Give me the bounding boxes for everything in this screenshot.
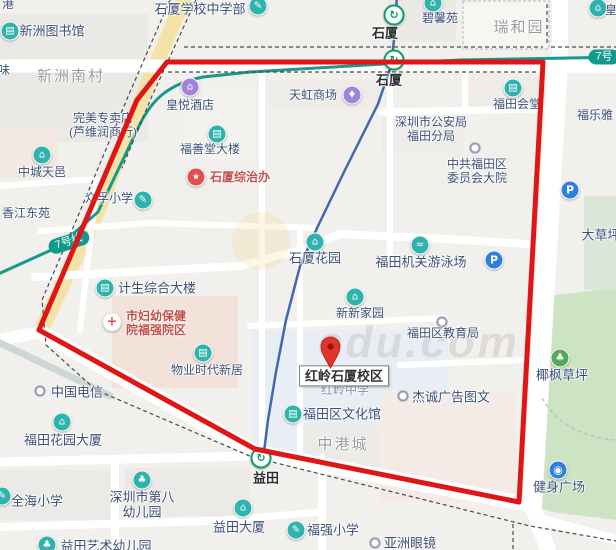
poi-shixia-huayuan[interactable]: 石厦花园 [289,250,341,265]
kindergarten-icon[interactable]: ♣ [38,536,57,550]
gym-icon[interactable]: ◉ [549,461,568,480]
poi-jisheng-building[interactable]: 计生综合大楼 [118,280,196,295]
kindergarten-icon[interactable]: ♣ [133,471,152,490]
poi-china-telecom[interactable]: 中国电信 [51,384,103,399]
school-icon[interactable]: ✎ [0,487,12,506]
parking-icon[interactable]: P [485,251,504,270]
school-icon[interactable]: ✎ [134,191,153,210]
poi-no8-kindergarten[interactable]: 深圳市第八幼儿园 [109,490,174,521]
poi-fuqiang-primary[interactable]: 福强小学 [307,522,359,537]
poi-futian-committee[interactable]: 中共福田区委员会大院 [447,157,507,185]
office-icon[interactable]: ▤ [96,279,115,298]
residence-icon[interactable]: ⌂ [234,499,253,518]
metro-icon[interactable]: ↻ [384,5,405,26]
poi-xinxin-jiayuan[interactable]: 新新家园 [336,306,384,320]
metro-line-badge: 7号 [588,50,616,65]
poi-jianshen-square[interactable]: 健身广场 [533,479,585,494]
poi-bixinyuan[interactable]: 碧馨苑 [422,11,458,25]
poi-futian-garden-tower[interactable]: 福田花园大厦 [24,432,102,447]
poi-wuye-shidai[interactable]: 物业时代新居 [171,363,243,377]
dot-icon[interactable] [470,143,481,154]
poi-shixia-school-middle[interactable]: 石厦学校中学部 [154,1,245,16]
poi-wanmei-store[interactable]: 完美专卖店(芦维润商行) [69,111,137,139]
metro-line-badge: 7号线 [47,228,92,255]
school-icon[interactable]: ✎ [287,521,306,540]
government-icon[interactable]: ★ [187,168,206,187]
dot-icon[interactable] [370,538,381,549]
residence-icon[interactable]: ⌂ [306,233,325,252]
metro-icon[interactable]: ↻ [384,50,405,71]
hotel-icon[interactable]: ⌂ [181,78,200,97]
poi-zhonggangcheng[interactable]: 中港城 [317,436,368,454]
poi-xinzhou-library[interactable]: 新洲图书馆 [19,23,84,38]
dot-icon[interactable] [398,391,409,402]
park-icon[interactable]: ♣ [551,349,570,368]
poi-fuyou-hospital[interactable]: 市妇幼保健院福强院区 [126,309,186,337]
poi-futian-education[interactable]: 福田区教育局 [407,326,479,340]
hospital-icon[interactable]: + [103,313,122,332]
poi-dacaoping[interactable]: 大草坪 [581,227,616,242]
dot-icon[interactable] [35,386,46,397]
poi-huang-partial[interactable]: 皇 [605,3,616,17]
poi-futian-huitang[interactable]: 福田会堂 [493,97,541,111]
poi-huangyue-hotel[interactable]: 皇悦酒店 [166,98,214,112]
residence-icon[interactable]: ⌂ [33,146,52,165]
poi-zhongfu-primary[interactable]: 众孚小学 [85,191,133,205]
parking-icon[interactable]: P [561,181,580,200]
residence-icon[interactable]: ⌂ [53,413,72,432]
office-icon[interactable]: ▤ [208,125,227,144]
office-icon[interactable]: ▤ [194,344,213,363]
poi-ruiheyuan[interactable]: 瑞和园 [493,19,544,37]
poi-wei-partial[interactable]: 味 [0,63,10,77]
poi-zhongcheng-tianyi[interactable]: 中城天邑 [18,165,66,179]
poi-futian-culture-hall[interactable]: 福田区文化馆 [303,406,381,421]
poi-shixia-zongzhiban[interactable]: 石厦综治办 [210,170,270,184]
poi-layer: ✎石厦学校中学部港▤新洲图书馆⌂碧馨苑瑞和园⌂皇↻石厦↻石厦♦天虹商场福乐雅▤福… [0,0,616,550]
library-icon[interactable]: ▤ [1,22,20,41]
poi-fushantang-building[interactable]: 福善堂大楼 [180,142,240,156]
poi-quanhai-primary[interactable]: 全海小学 [11,493,63,508]
swim-icon[interactable]: ≈ [411,236,430,255]
office-icon[interactable]: ▤ [504,79,523,98]
poi-harbor-partial[interactable]: 港 [2,0,14,11]
poi-hongling-shixia-campus[interactable]: 红岭石厦校区 [299,365,389,386]
poi-fuleya[interactable]: 福乐雅 [577,108,613,122]
poi-xiangjiang-dongyuan[interactable]: 香江东苑 [2,206,50,220]
poi-yefeng-lawn[interactable]: 椰枫草坪 [536,367,588,382]
shopping-icon[interactable]: ♦ [343,86,362,105]
poi-shixia-station-south[interactable]: 石厦 [376,72,402,87]
poi-xinzhou-nancun[interactable]: 新洲南村 [37,68,105,86]
poi-tianhong-mall[interactable]: 天虹商场 [289,88,337,102]
poi-yazhou-glasses[interactable]: 亚洲眼镜 [384,535,436,550]
map-canvas[interactable]: edu.com ✎石厦学校中学部港▤新洲图书馆⌂碧馨苑瑞和园⌂皇↻石厦↻石厦♦天… [0,0,616,550]
metro-icon[interactable]: ↻ [251,448,272,469]
residence-icon[interactable]: ⌂ [346,288,365,307]
office-icon[interactable]: ▤ [284,405,303,424]
poi-yitian-tower[interactable]: 益田大厦 [213,519,265,534]
poi-yitian-station[interactable]: 益田 [253,470,279,485]
poi-jiecheng-ad[interactable]: 杰诚广告图文 [412,389,490,404]
poi-shixia-station-north[interactable]: 石厦 [372,25,398,40]
poi-futian-swimming[interactable]: 福田机关游泳场 [375,254,466,269]
poi-yitian-art-kindergarten[interactable]: 益田艺术幼儿园 [60,538,151,550]
poi-shenzhen-police[interactable]: 深圳市公安局福田分局 [395,115,467,143]
school-icon[interactable]: ✎ [249,0,268,16]
